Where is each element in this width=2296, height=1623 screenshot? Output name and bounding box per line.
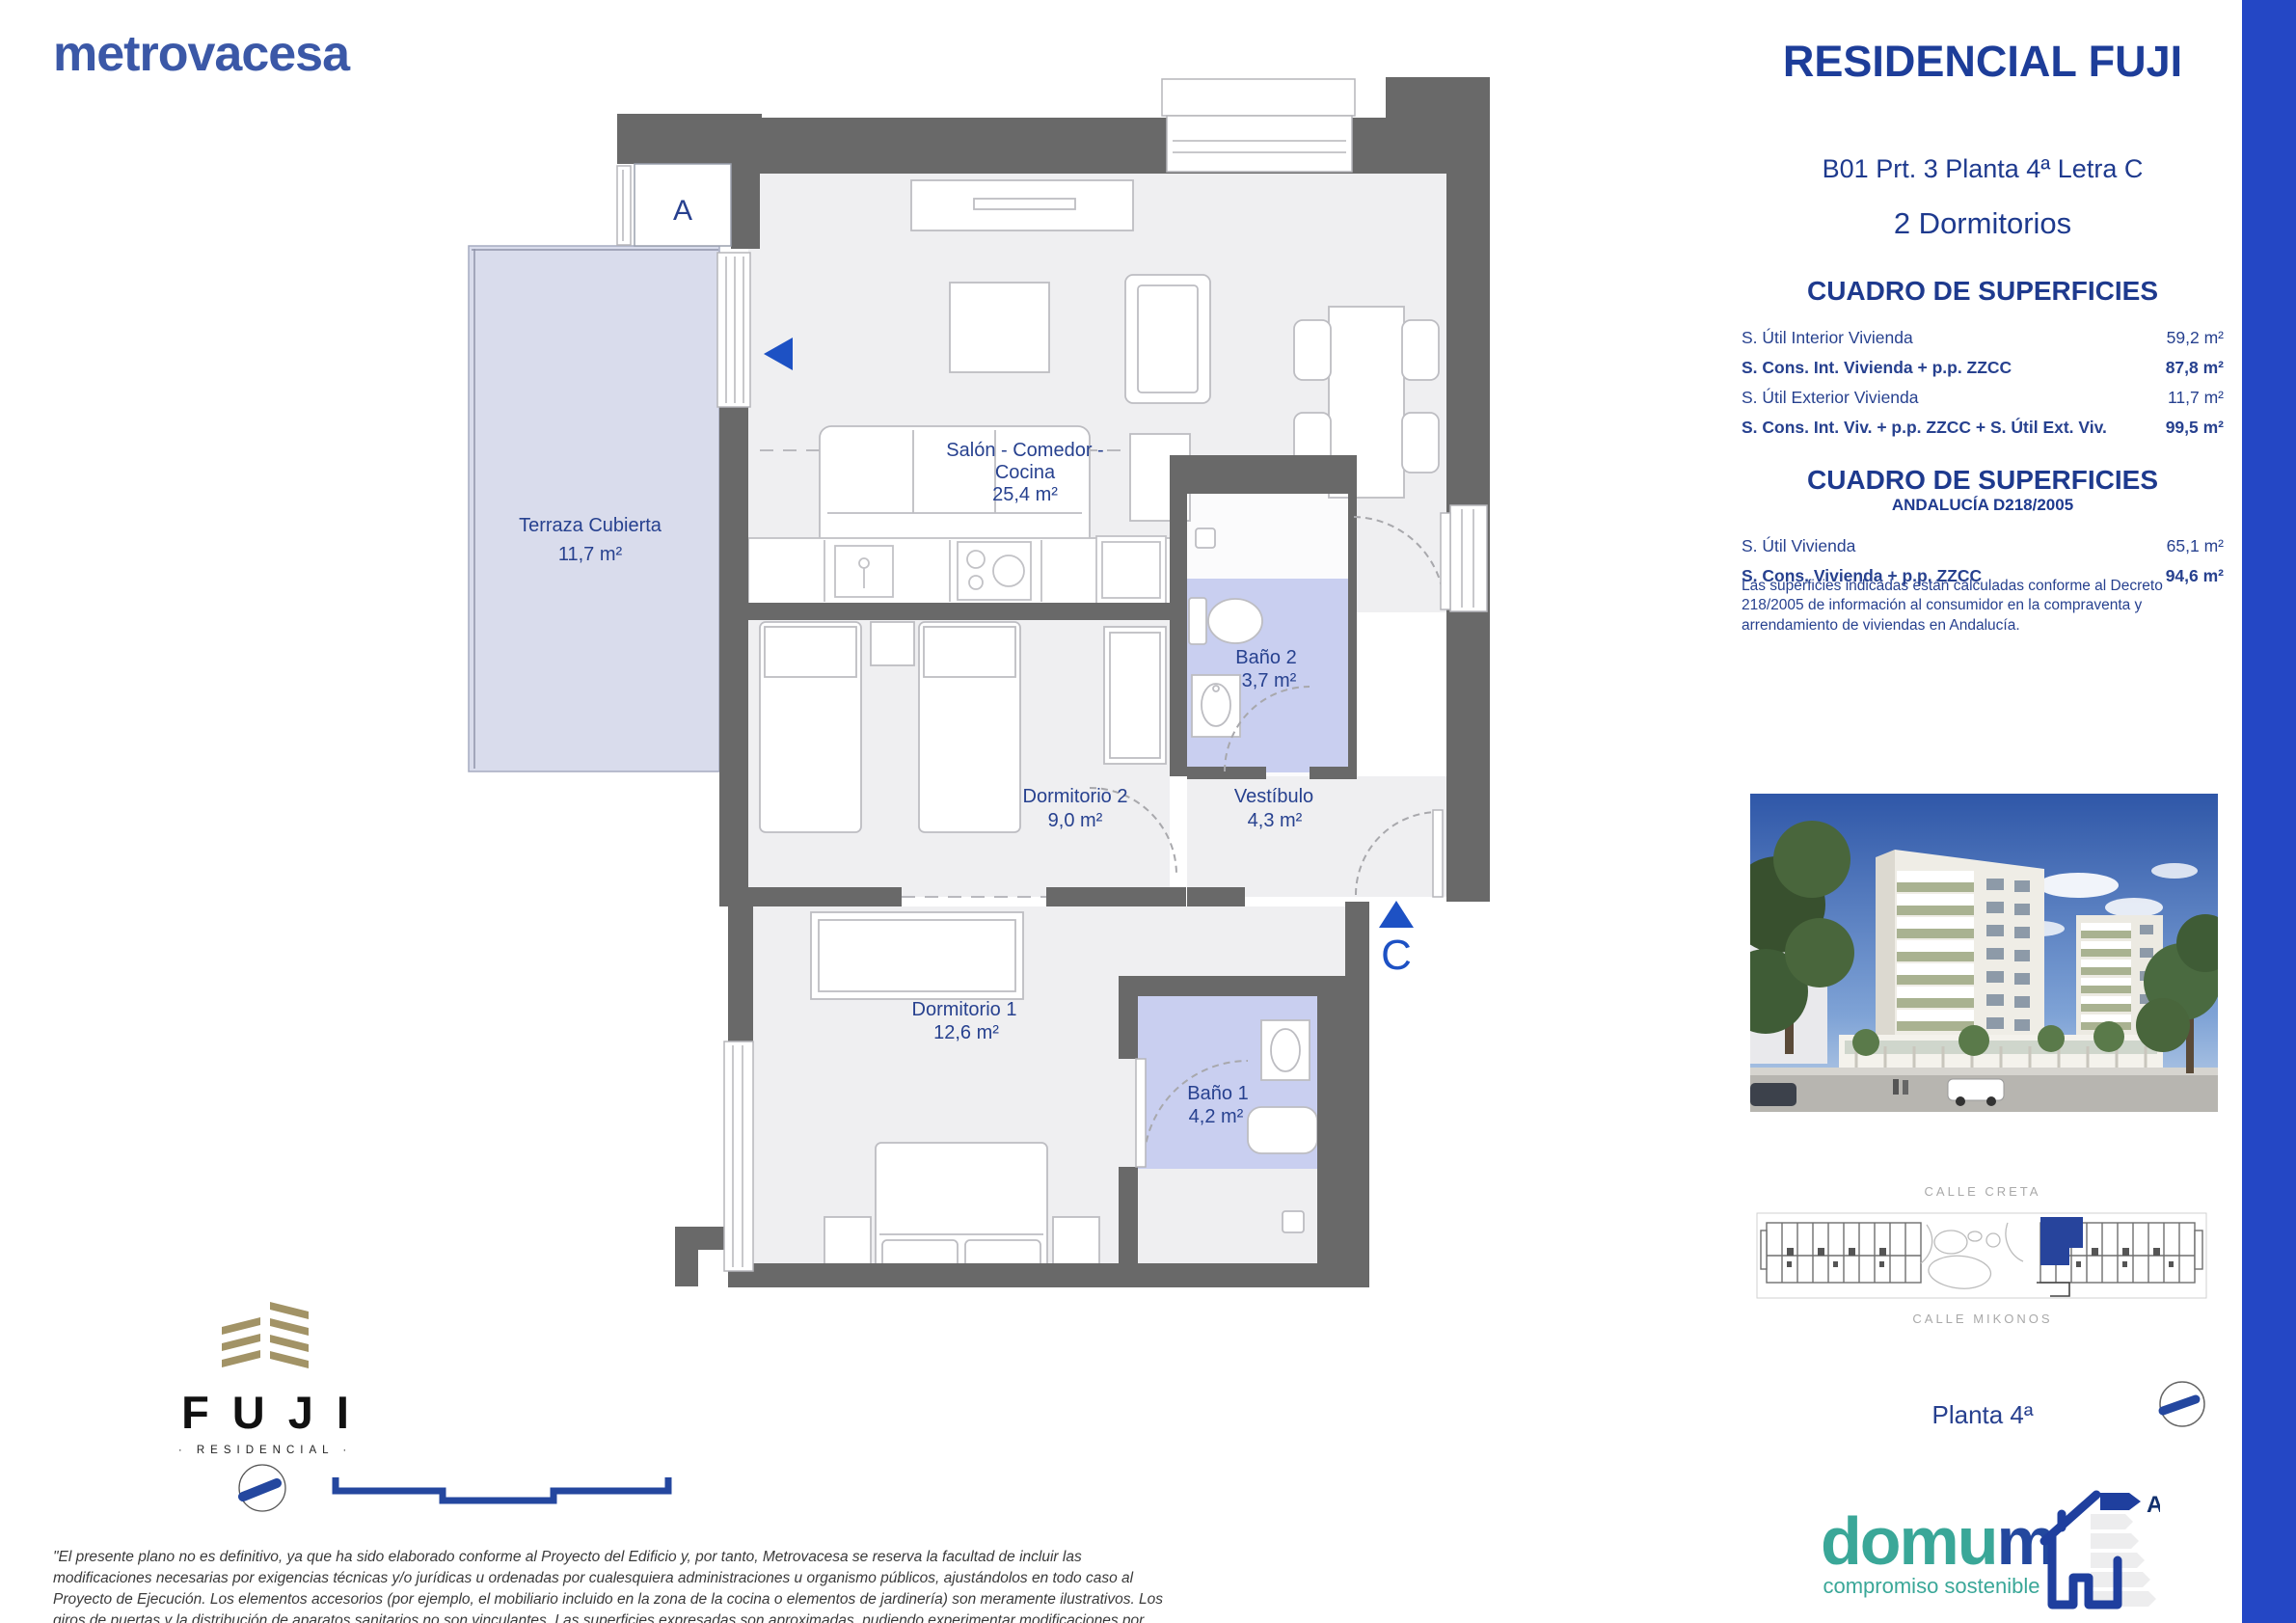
compass-icon xyxy=(236,1462,288,1514)
portal-letter: A xyxy=(673,195,692,227)
unit-type: 2 Dormitorios xyxy=(1736,206,2229,241)
table-row: S. Cons. Int. Vivienda + p.p. ZZCC 87,8 … xyxy=(1742,358,2224,378)
legal-disclaimer: "El presente plano no es definitivo, ya … xyxy=(53,1547,1164,1623)
domum-logo: domum compromiso sostenible xyxy=(1821,1512,2042,1599)
row-label: S. Útil Interior Vivienda xyxy=(1742,328,1913,348)
surfaces-andalucia-subtitle: ANDALUCÍA D218/2005 xyxy=(1736,496,2229,515)
room-area-salon: 25,4 m² xyxy=(992,484,1058,505)
row-value: 59,2 m² xyxy=(2167,328,2224,348)
row-value: 65,1 m² xyxy=(2167,536,2224,556)
plan-sheet: metrovacesa xyxy=(0,0,2296,1623)
fuji-wordmark: FUJI xyxy=(125,1386,405,1439)
row-label: S. Útil Exterior Vivienda xyxy=(1742,388,1919,408)
energy-letter: A xyxy=(2147,1492,2160,1518)
room-label-bano1: Baño 1 xyxy=(1187,1083,1248,1104)
room-label-dormitorio2: Dormitorio 2 xyxy=(1023,786,1128,807)
floor-label: Planta 4ª xyxy=(1736,1400,2229,1430)
fuji-logo: FUJI · RESIDENCIAL · xyxy=(125,1302,405,1456)
room-area-dormitorio1: 12,6 m² xyxy=(933,1022,999,1043)
room-label-salon-2: Cocina xyxy=(995,462,1056,483)
row-label: S. Cons. Int. Viv. + p.p. ZZCC + S. Útil… xyxy=(1742,418,2107,438)
table-row: S. Útil Interior Vivienda 59,2 m² xyxy=(1742,328,2224,348)
decree-note: Las superficies indicadas están calculad… xyxy=(1742,577,2216,636)
entrance-arrow-icon xyxy=(1379,901,1414,928)
row-value: 11,7 m² xyxy=(2168,388,2224,408)
table-row: S. Útil Vivienda 65,1 m² xyxy=(1742,536,2224,556)
entrance-letter: C xyxy=(1381,932,1412,979)
room-area-bano2: 3,7 m² xyxy=(1242,670,1297,691)
room-label-dormitorio1: Dormitorio 1 xyxy=(912,999,1017,1020)
section-profile-line xyxy=(323,1471,680,1509)
room-area-vestibulo: 4,3 m² xyxy=(1248,810,1303,831)
room-area-terraza: 11,7 m² xyxy=(558,544,623,565)
fuji-chevrons-icon xyxy=(222,1302,309,1369)
page-title: RESIDENCIAL FUJI xyxy=(1736,37,2229,87)
siteplan-drawing xyxy=(1755,1202,2208,1310)
compass-icon xyxy=(2157,1379,2207,1429)
metrovacesa-logo: metrovacesa xyxy=(53,25,349,83)
energy-house-icon: A xyxy=(2033,1472,2160,1614)
row-label: S. Cons. Int. Vivienda + p.p. ZZCC xyxy=(1742,358,2012,378)
surfaces-title: CUADRO DE SUPERFICIES xyxy=(1736,276,2229,307)
unit-code: B01 Prt. 3 Planta 4ª Letra C xyxy=(1736,154,2229,184)
room-label-bano2: Baño 2 xyxy=(1235,647,1296,668)
room-label-vestibulo: Vestíbulo xyxy=(1234,786,1313,807)
table-row: S. Útil Exterior Vivienda 11,7 m² xyxy=(1742,388,2224,408)
right-accent-bar xyxy=(2242,0,2296,1623)
domum-tagline: compromiso sostenible xyxy=(1821,1574,2042,1599)
fuji-tagline: · RESIDENCIAL · xyxy=(125,1445,405,1456)
domum-word-teal: domu xyxy=(1821,1503,1997,1579)
street-top-label: CALLE CRETA xyxy=(1736,1184,2229,1199)
building-render xyxy=(1750,794,2218,1112)
room-area-dormitorio2: 9,0 m² xyxy=(1048,810,1103,831)
row-value: 87,8 m² xyxy=(2166,358,2224,378)
surfaces-andalucia-title: CUADRO DE SUPERFICIES xyxy=(1736,465,2229,496)
furniture-kitchen xyxy=(748,536,1178,604)
floorplan-drawing: A C Terraza Cubierta 11,7 m² Salón - Com… xyxy=(453,68,1495,1292)
room-label-terraza: Terraza Cubierta xyxy=(519,515,662,536)
room-area-bano1: 4,2 m² xyxy=(1189,1106,1244,1127)
surfaces-table: S. Útil Interior Vivienda 59,2 m² S. Con… xyxy=(1742,318,2224,447)
row-label: S. Útil Vivienda xyxy=(1742,536,1855,556)
street-bottom-label: CALLE MIKONOS xyxy=(1736,1312,2229,1326)
terrace-area xyxy=(469,246,719,771)
table-row: S. Cons. Int. Viv. + p.p. ZZCC + S. Útil… xyxy=(1742,418,2224,438)
row-value: 99,5 m² xyxy=(2166,418,2224,438)
room-label-salon-1: Salón - Comedor - xyxy=(946,440,1103,461)
